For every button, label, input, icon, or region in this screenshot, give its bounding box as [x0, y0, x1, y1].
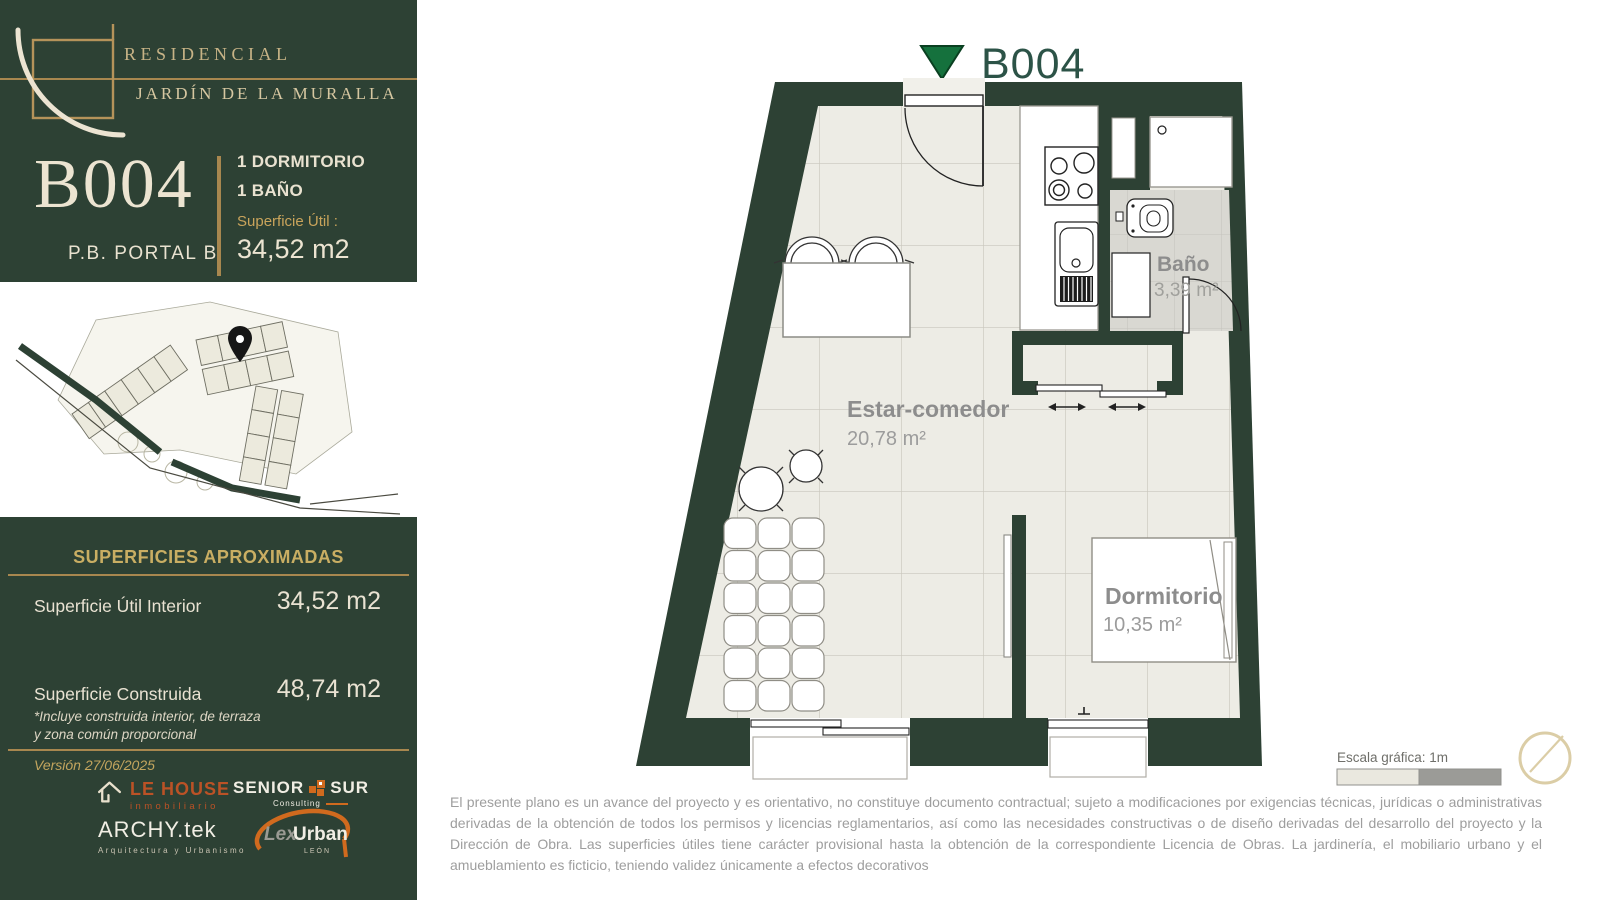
- lexurban-graphic: Lex Urban LEÓN: [246, 803, 352, 863]
- site-plan-graphic: [0, 282, 417, 517]
- surface-note-line1: *Incluye construida interior, de terraza: [34, 709, 261, 724]
- shaft: [1112, 118, 1135, 178]
- unit-location: P.B. PORTAL B: [68, 243, 218, 265]
- room-area: 3,39 m²: [1154, 280, 1218, 301]
- seniorsur-word2: SUR: [330, 778, 369, 798]
- unit-bedrooms: 1 DORMITORIO: [237, 152, 407, 172]
- room-area: 20,78 m²: [847, 428, 926, 450]
- entrance-door: [905, 95, 983, 106]
- unit-info: 1 DORMITORIO 1 BAÑO Superficie Útil : 34…: [237, 152, 407, 265]
- site-plan: [0, 282, 417, 517]
- brand-name-line2: JARDÍN DE LA MURALLA: [136, 84, 398, 104]
- house-icon: [96, 779, 123, 805]
- lexurban-tagline: LEÓN: [304, 846, 331, 855]
- wall: [1012, 381, 1038, 395]
- unit-code: B004: [34, 146, 194, 223]
- dining-table: [783, 263, 910, 337]
- seniorsur-word1: SENIOR: [233, 778, 304, 798]
- surface-row-label: Superficie Útil Interior: [34, 596, 201, 617]
- room-name: Baño: [1157, 253, 1210, 276]
- sidebar-top-panel: RESIDENCIAL JARDÍN DE LA MURALLA B004 P.…: [0, 0, 417, 282]
- floor-plan: B004: [417, 0, 1600, 900]
- site-parcel: [58, 302, 352, 474]
- archytek-tagline: Arquitectura y Urbanismo: [98, 846, 246, 855]
- version-text: Versión 27/06/2025: [34, 757, 155, 773]
- living-window: [750, 718, 910, 779]
- scale-label: Escala gráfica: 1m: [1337, 750, 1448, 765]
- logo-archytek: ARCHY.tek Arquitectura y Urbanismo: [98, 817, 246, 855]
- wall-closet-top: [1012, 331, 1183, 345]
- kitchen-sink: [1055, 222, 1098, 306]
- lehouse-tagline: inmobiliario: [130, 801, 230, 812]
- plan-sheet: RESIDENCIAL JARDÍN DE LA MURALLA B004 P.…: [0, 0, 1600, 900]
- room-name: Dormitorio: [1105, 583, 1223, 609]
- logo-lehouse: LE HOUSE inmobiliario: [96, 779, 230, 812]
- wall-kitchen-bath: [1098, 104, 1110, 331]
- surfaces-heading: SUPERFICIES APROXIMADAS: [0, 547, 417, 568]
- surface-note-line2: y zona común proporcional: [34, 727, 196, 742]
- gold-rule: [8, 574, 409, 576]
- logo-lexurban: Lex Urban LEÓN: [246, 803, 352, 868]
- unit-area-value: 34,52 m2: [237, 234, 407, 265]
- room-area: 10,35 m²: [1103, 614, 1182, 636]
- shower-tray: [1150, 117, 1232, 187]
- north-compass-icon: [1520, 733, 1570, 783]
- surface-row-label: Superficie Construida: [34, 684, 201, 705]
- surface-row-value: 48,74 m2: [277, 675, 381, 704]
- bathroom-vanity: [1112, 253, 1150, 317]
- lexurban-word2: Urban: [293, 824, 348, 845]
- lehouse-name: LE HOUSE: [130, 779, 230, 800]
- surface-row-value: 34,52 m2: [277, 587, 381, 616]
- scale-bar-light: [1337, 769, 1419, 785]
- sidebar-bottom-panel: SUPERFICIES APROXIMADAS Superficie Útil …: [0, 517, 417, 900]
- archytek-name: ARCHY.tek: [98, 817, 246, 843]
- unit-bathrooms: 1 BAÑO: [237, 181, 407, 201]
- brand-logo-graphic: [0, 0, 417, 140]
- bedroom-pocket-door: [1004, 535, 1011, 657]
- brand-name-line1: RESIDENCIAL: [124, 44, 292, 65]
- unit-area-label: Superficie Útil :: [237, 213, 407, 230]
- pouf: [739, 467, 783, 511]
- plan-title: B004: [981, 40, 1085, 88]
- wall: [1172, 345, 1183, 385]
- gold-divider: [217, 156, 221, 276]
- scale-bar-dark: [1419, 769, 1501, 785]
- room-name: Estar-comedor: [847, 396, 1009, 422]
- disclaimer-text: El presente plano es un avance del proye…: [450, 792, 1542, 876]
- wall: [1012, 345, 1023, 385]
- location-pin-dot: [236, 335, 244, 343]
- gold-rule: [8, 749, 409, 751]
- unit-marker-triangle-icon: [921, 46, 963, 79]
- kitchen-counter: [1020, 106, 1098, 330]
- wall-partition: [1012, 515, 1026, 718]
- squares-icon: [308, 779, 326, 797]
